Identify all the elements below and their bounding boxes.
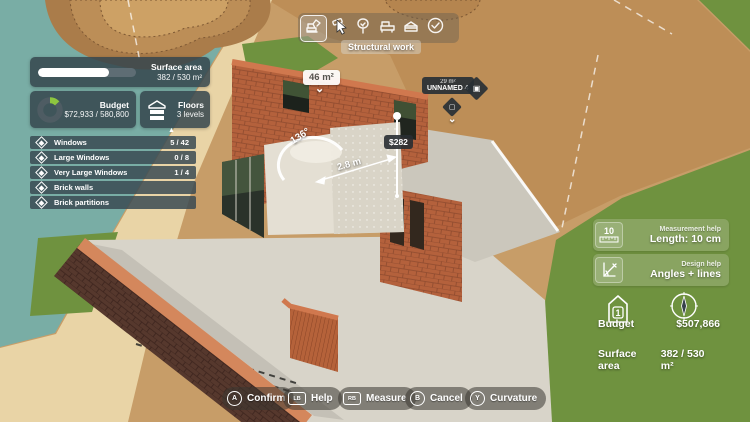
diamond-icon [35, 151, 48, 164]
surface-label: Surface area [151, 62, 202, 73]
floors-value: 3 levels [177, 110, 204, 119]
item-label: Windows [54, 138, 87, 147]
svg-text:10: 10 [604, 226, 614, 236]
list-item-large-windows[interactable]: Large Windows 0 / 8 [30, 151, 196, 164]
design-help-label: Design help [623, 261, 721, 268]
measurement-help-value: Length: 10 cm [623, 233, 721, 245]
door-panel [410, 200, 424, 250]
item-label: Brick partitions [54, 198, 109, 207]
mode-toolbar[interactable] [298, 13, 459, 43]
confirm-label: Confirm [247, 393, 285, 404]
design-help-value: Angles + lines [623, 268, 721, 280]
tree-icon [354, 17, 372, 40]
budget-label: Budget [598, 318, 634, 330]
toolbar-tooltip: Structural work [341, 40, 421, 54]
sofa-icon: ▣ [473, 84, 481, 93]
tab-landscaping[interactable] [351, 15, 375, 41]
sofa-icon [378, 17, 396, 40]
chevron-down-icon: ⌄ [448, 114, 456, 125]
room-tag-name: UNNAMED 4 [427, 85, 469, 92]
tab-finishing[interactable] [399, 15, 423, 41]
item-value: 5 / 42 [170, 138, 189, 147]
budget-readout: Budget $507,866 [598, 318, 720, 330]
gamepad-b-icon: B [410, 391, 425, 406]
gamepad-a-icon: A [227, 391, 242, 406]
floors-label: Floors [177, 100, 204, 111]
measure-button[interactable]: RB Measure [338, 387, 416, 410]
diamond-icon [35, 166, 48, 179]
measure-label: Measure [366, 393, 407, 404]
item-value: 0 / 8 [174, 153, 189, 162]
surface-progress-bar [38, 68, 136, 77]
tab-finish[interactable] [423, 15, 447, 41]
gamepad-lb-icon: LB [288, 392, 306, 405]
help-button[interactable]: LB Help [283, 387, 342, 410]
box-icon: ▢ [449, 103, 456, 111]
surface-value: 382 / 530 m² [151, 73, 202, 82]
list-item-brick-partitions[interactable]: Brick partitions [30, 196, 196, 209]
budget-donut-chart [37, 97, 63, 123]
item-label: Brick walls [54, 183, 93, 192]
diamond-icon [35, 136, 48, 149]
measurement-help-card: 10 Measurement help Length: 10 cm [593, 219, 729, 251]
tab-furnishing[interactable] [375, 15, 399, 41]
budget-label: Budget [64, 100, 129, 111]
cost-tag[interactable]: $282 [384, 135, 413, 149]
budget-card: Budget $72,933 / 580,800 [30, 91, 136, 128]
list-item-windows[interactable]: Windows 5 / 42 [30, 136, 196, 149]
gamepad-y-icon: Y [470, 391, 485, 406]
protractor-icon [595, 257, 623, 283]
surface-value: 382 / 530 m² [661, 348, 720, 372]
tab-structural-work[interactable] [300, 15, 327, 42]
surface-progress-fill [38, 68, 109, 77]
help-label: Help [311, 393, 333, 404]
cancel-button[interactable]: B Cancel [405, 387, 472, 410]
floors-card: Floors 3 levels [140, 91, 210, 128]
cancel-label: Cancel [430, 393, 463, 404]
surface-area-card: Surface area 382 / 530 m² [30, 57, 210, 87]
roof-icon [402, 17, 420, 40]
item-label: Large Windows [54, 153, 109, 162]
design-help-card: Design help Angles + lines [593, 254, 729, 286]
budget-value: $72,933 / 580,800 [64, 110, 129, 119]
diamond-icon [35, 196, 48, 209]
item-label: Very Large Windows [54, 168, 127, 177]
cursor-pointer [336, 19, 348, 40]
room-tag-area: 29 m² [427, 79, 469, 85]
surface-label: Surface area [598, 348, 661, 372]
list-item-very-large-windows[interactable]: Very Large Windows 1 / 4 [30, 166, 196, 179]
gamepad-rb-icon: RB [343, 392, 361, 405]
diamond-icon [35, 181, 48, 194]
ruler-icon: 10 [595, 222, 623, 248]
excavator-icon [304, 16, 323, 40]
budget-value: $507,866 [676, 318, 720, 330]
checkmark-icon [426, 16, 445, 40]
list-item-brick-walls[interactable]: Brick walls [30, 181, 196, 194]
floors-icon [146, 98, 168, 122]
measurement-help-label: Measurement help [623, 226, 721, 233]
surface-readout: Surface area 382 / 530 m² [598, 348, 720, 372]
list-scroll-up-icon[interactable]: ▲ [168, 127, 175, 134]
item-value: 1 / 4 [174, 168, 189, 177]
game-viewport[interactable]: Structural work Surface area 382 / 530 m… [0, 0, 750, 422]
curvature-label: Curvature [490, 393, 537, 404]
svg-text:1: 1 [615, 308, 620, 318]
curvature-button[interactable]: Y Curvature [465, 387, 546, 410]
chevron-down-icon: ⌄ [315, 82, 324, 95]
